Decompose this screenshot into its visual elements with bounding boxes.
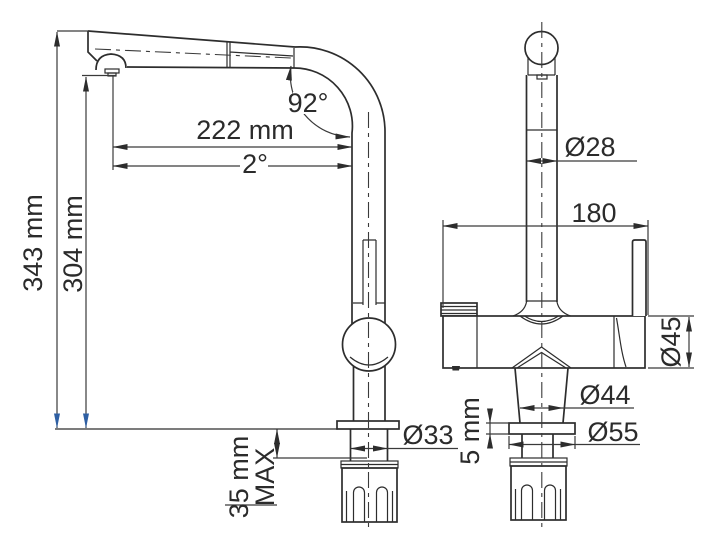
dim-flange-thickness-label: 5 mm [455,397,485,465]
side-view-dimensions: 343 mm 304 mm 222 mm 2° 92° 35 mm MAX Ø3… [18,31,458,518]
dim-overall-height-label: 343 mm [18,194,48,292]
dim-flange-diameter-label: Ø55 [587,417,638,447]
dim-outlet-height-label: 304 mm [58,195,88,293]
dim-column-diameter-label: Ø28 [564,132,615,162]
mounting-nut [342,468,397,522]
technical-drawing-page: 343 mm 304 mm 222 mm 2° 92° 35 mm MAX Ø3… [0,0,720,550]
riser-and-body [337,112,399,527]
spray-head-edge [88,31,97,61]
dim-cone-diameter-label: Ø44 [579,380,630,410]
dim-bend-angle-label: 92° [288,88,329,118]
nut-ribs [347,487,393,522]
dim-tilt-angle-label: 2° [242,149,268,179]
spray-head-dome [96,54,126,70]
dim-body-length-label: 180 [571,198,616,228]
mounting-nut-front [511,466,566,520]
end-cap-foot [452,366,460,371]
spout-outline [88,31,385,330]
dim-counter-thickness-max-label: MAX [250,448,280,507]
dim-body-diameter-label: Ø45 [656,316,686,367]
dim-shank-diameter-label: Ø33 [402,420,453,450]
shank-front [522,434,553,458]
faucet-dimensional-drawing: 343 mm 304 mm 222 mm 2° 92° 35 mm MAX Ø3… [0,0,720,550]
handle-lever [633,240,647,316]
dim-reach-label: 222 mm [196,115,294,145]
pullout-hose [363,240,376,305]
nut-ribs-front [516,485,561,520]
front-view-dimensions: Ø28 180 Ø45 Ø44 5 mm Ø55 [443,132,694,465]
